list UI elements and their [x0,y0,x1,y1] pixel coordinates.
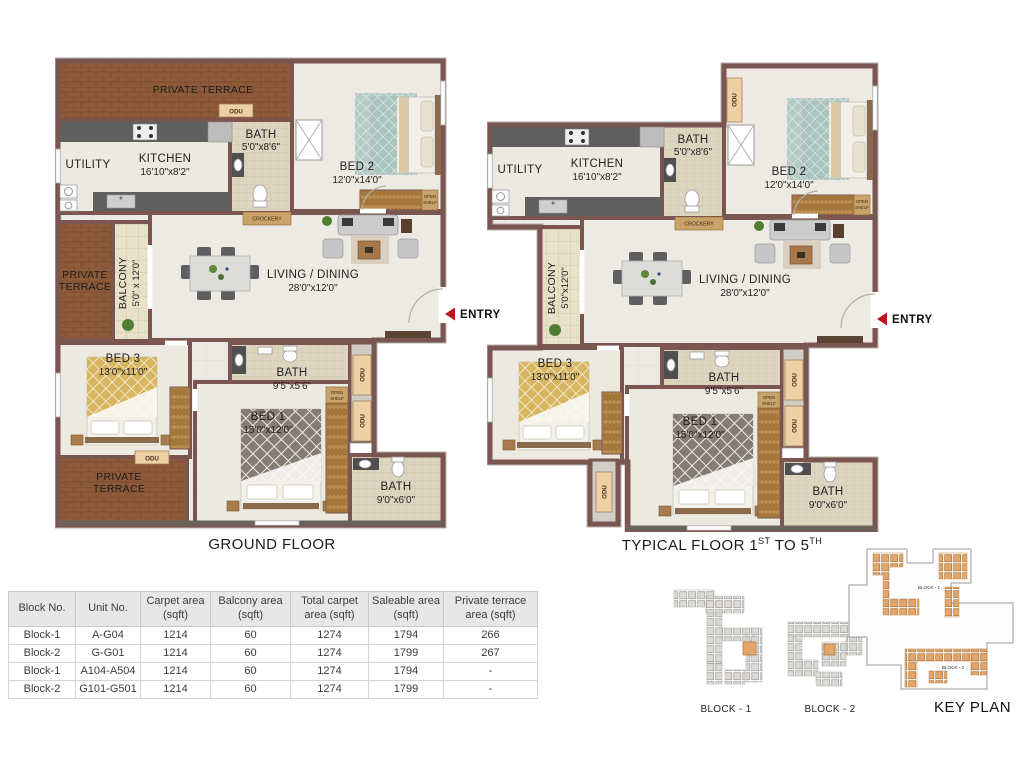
bed1-dims: 15'0"x12'0" [243,425,293,436]
typical-floor-plan: OPEN SHELF OPEN SHELF ODU ODU [487,62,947,532]
highlighted-unit-icon [743,642,756,655]
window-icon [56,373,60,417]
cell-carpet: 1214 [141,662,211,680]
key-plan-map: BLOCK - 1 BLOCK - 2 [845,545,1017,697]
crockery-tag: CROCKERY [675,217,723,230]
typical-title-text1: TYPICAL FLOOR 1 [622,537,758,554]
cell-unit: A-G04 [76,626,141,644]
block2-mini-label: BLOCK - 2 [786,704,874,715]
window-icon [488,378,492,422]
bed3-label: BED 3 [538,358,573,370]
odu-tag-corridor-1: ODU [785,360,803,400]
open-shelf-label-line1: OPEN [424,194,436,199]
balcony-label: BALCONY [546,262,558,314]
entry-door-gap [871,292,880,328]
cell-balcony: 60 [211,626,291,644]
bed3-dims: 13'0"x11'0" [531,372,580,383]
open-shelf-label-line2: SHELF [762,401,776,406]
bath-mid-dims: 9'5"x5'6" [273,381,312,392]
private-terrace-bottom-label2: TERRACE [93,483,145,495]
cell-block: Block-1 [9,626,76,644]
odu-label: ODU [792,373,799,387]
window-icon [441,81,445,125]
col-header-saleable: Saleable area (sqft) [369,592,444,627]
col-header-private-terrace: Private terrace area (sqft) [444,592,538,627]
entry-marker: ENTRY [877,313,933,327]
balcony-opening [148,245,153,309]
odu-tag-top: ODU [219,104,253,117]
bed1-wardrobe-icon [758,408,780,518]
plant-icon [549,324,561,336]
open-shelf-label-line2: SHELF [423,200,437,205]
bath-bottom-dims: 9'0"x6'0" [809,500,848,511]
cell-unit: G-G01 [76,644,141,662]
cell-carpet: 1214 [141,644,211,662]
cell-saleable: 1799 [369,680,444,698]
odu-tag-corridor-1: ODU [353,355,371,395]
utility-appliance-icon [492,190,509,216]
col-header-unit: Unit No. [76,592,141,627]
kitchen-label: KITCHEN [139,153,192,165]
window-icon [255,521,299,525]
odu-label: ODU [145,456,159,463]
bed3-dims: 13'0"x11'0" [99,367,148,378]
cell-balcony: 60 [211,680,291,698]
entry-label: ENTRY [892,314,933,326]
col-header-balcony: Balcony area (sqft) [211,592,291,627]
open-shelf-label-line1: OPEN [331,390,343,395]
lift-shaft-icon [296,120,322,160]
bath-top-label: BATH [245,129,276,141]
ground-floor-plan: OPEN SHELF OPEN SHELF ODU ODU [55,57,505,529]
bed1-open-shelf-tag: OPEN SHELF [326,387,348,403]
open-shelf-label-line1: OPEN [856,199,868,204]
col-header-carpet: Carpet area (sqft) [141,592,211,627]
utility-appliance-icon [60,185,77,211]
private-terrace-left-label2: TERRACE [59,281,111,293]
typical-title-sup2: TH [809,536,822,546]
key-plan-block1-label: BLOCK - 1 [918,585,941,590]
key-plan-block2-label: BLOCK - 2 [942,665,965,670]
odu-label: ODU [360,414,367,428]
plant-icon [122,319,134,331]
open-shelf-label-line2: SHELF [330,396,344,401]
block1-mini-plan [670,582,782,700]
bed1-door-gap [625,394,630,416]
utility-label: UTILITY [66,159,111,171]
crockery-label: CROCKERY [684,222,714,228]
cell-block: Block-2 [9,644,76,662]
bed2-door-gap [360,209,386,214]
col-header-block: Block No. [9,592,76,627]
col-header-total-carpet: Total carpet area (sqft) [291,592,369,627]
window-icon [488,154,492,188]
ground-floor-title: GROUND FLOOR [172,536,372,553]
bath-top-dims: 5'0"x8'6" [242,142,281,153]
bed2-open-shelf-tag: OPEN SHELF [422,190,438,210]
lift-shaft-icon [728,125,754,165]
cell-saleable: 1794 [369,662,444,680]
odu-label: ODU [732,93,739,107]
cell-balcony: 60 [211,662,291,680]
open-shelf-label-line1: OPEN [763,395,775,400]
bath-bottom-label: BATH [812,486,843,498]
bed1-wardrobe-icon [326,403,348,513]
cell-balcony: 60 [211,644,291,662]
private-terrace-top-label: PRIVATE TERRACE [153,84,254,96]
private-terrace-left-label1: PRIVATE [62,269,107,281]
floorplan-brochure-page: OPEN SHELF OPEN SHELF ODU ODU [0,0,1024,768]
living-dims: 28'0"x12'0" [720,288,770,299]
odu-label: ODU [602,485,609,499]
odu-tag-top-vertical: ODU [727,78,742,122]
key-plan-title: KEY PLAN [900,699,1024,716]
bath-bottom-dims: 9'0"x6'0" [377,495,416,506]
utility-label: UTILITY [498,164,543,176]
crockery-tag: CROCKERY [243,212,291,225]
balcony-dims: 5'0"x12'0" [560,267,571,309]
cell-terrace: 266 [444,626,538,644]
bed2-label: BED 2 [340,161,375,173]
cell-saleable: 1794 [369,626,444,644]
cell-carpet: 1214 [141,626,211,644]
living-label: LIVING / DINING [699,274,791,286]
table-row: Block-1 A-G04 1214 60 1274 1794 266 [9,626,538,644]
bed3-door-gap [597,346,619,351]
bed2-open-shelf-tag: OPEN SHELF [854,195,870,215]
odu-label: ODU [360,368,367,382]
bath-top-dims: 5'0"x8'6" [674,147,713,158]
table-row: Block-1 A104-A504 1214 60 1274 1794 - [9,662,538,680]
bed1-door-gap [193,389,198,411]
cell-block: Block-2 [9,680,76,698]
bed3-door-gap [165,341,187,346]
bath-top-label: BATH [677,134,708,146]
cell-block: Block-1 [9,662,76,680]
bed1-open-shelf-tag: OPEN SHELF [758,392,780,408]
table-row: Block-2 G-G01 1214 60 1274 1799 267 [9,644,538,662]
living-dims: 28'0"x12'0" [288,283,338,294]
bed2-label: BED 2 [772,166,807,178]
living-label: LIVING / DINING [267,269,359,281]
cell-unit: G101-G501 [76,680,141,698]
cell-total: 1274 [291,626,369,644]
bath-mid-label: BATH [708,372,739,384]
odu-label: ODU [792,419,799,433]
cell-terrace: 267 [444,644,538,662]
typical-title-sup1: ST [758,536,770,546]
kitchen-dims: 16'10"x8'2" [572,172,622,183]
bed3-wardrobe-icon [170,387,190,449]
bath-mid-label: BATH [276,367,307,379]
table-header-row: Block No. Unit No. Carpet area (sqft) Ba… [9,592,538,627]
bath-mid-dims: 9'5"x5'6" [705,386,744,397]
balcony-opening [580,250,585,314]
cell-terrace: - [444,680,538,698]
cell-terrace: - [444,662,538,680]
balcony-label: BALCONY [117,257,129,309]
bed1-dims: 15'0"x12'0" [675,430,725,441]
open-shelf-label-line2: SHELF [855,205,869,210]
bed3-wardrobe-icon [602,392,622,454]
window-icon [873,86,877,130]
window-icon [687,526,731,530]
bed3-label: BED 3 [106,353,141,365]
cell-saleable: 1799 [369,644,444,662]
kitchen-label: KITCHEN [571,158,624,170]
bed2-door-gap [792,214,818,219]
bath-bottom-label: BATH [380,481,411,493]
balcony-dims: 5'0" x 12'0" [131,260,142,307]
odu-tag-shaft: ODU [596,472,612,512]
private-terrace-bottom-label1: PRIVATE [96,471,141,483]
cell-total: 1274 [291,644,369,662]
bed2-dims: 12'0"x14'0" [332,175,382,186]
highlighted-unit-icon [824,644,835,655]
crockery-label: CROCKERY [252,217,282,223]
cell-total: 1274 [291,680,369,698]
kitchen-dims: 16'10"x8'2" [140,167,190,178]
cell-carpet: 1214 [141,680,211,698]
entry-door-gap [439,287,448,323]
block1-mini-label: BLOCK - 1 [670,704,782,715]
cell-unit: A104-A504 [76,662,141,680]
odu-tag-corridor-2: ODU [353,401,371,441]
cell-total: 1274 [291,662,369,680]
odu-label: ODU [229,109,243,116]
bed2-dims: 12'0"x14'0" [764,180,814,191]
area-summary-table: Block No. Unit No. Carpet area (sqft) Ba… [8,591,538,699]
typical-title-text2: TO 5 [770,537,809,554]
typical-floor-title: TYPICAL FLOOR 1ST TO 5TH [597,536,847,554]
table-row: Block-2 G101-G501 1214 60 1274 1799 - [9,680,538,698]
odu-tag-bottom: ODU [135,451,169,464]
bed1-label: BED 1 [251,411,286,423]
odu-tag-corridor-2: ODU [785,406,803,446]
bed1-label: BED 1 [683,416,718,428]
window-icon [56,149,60,183]
